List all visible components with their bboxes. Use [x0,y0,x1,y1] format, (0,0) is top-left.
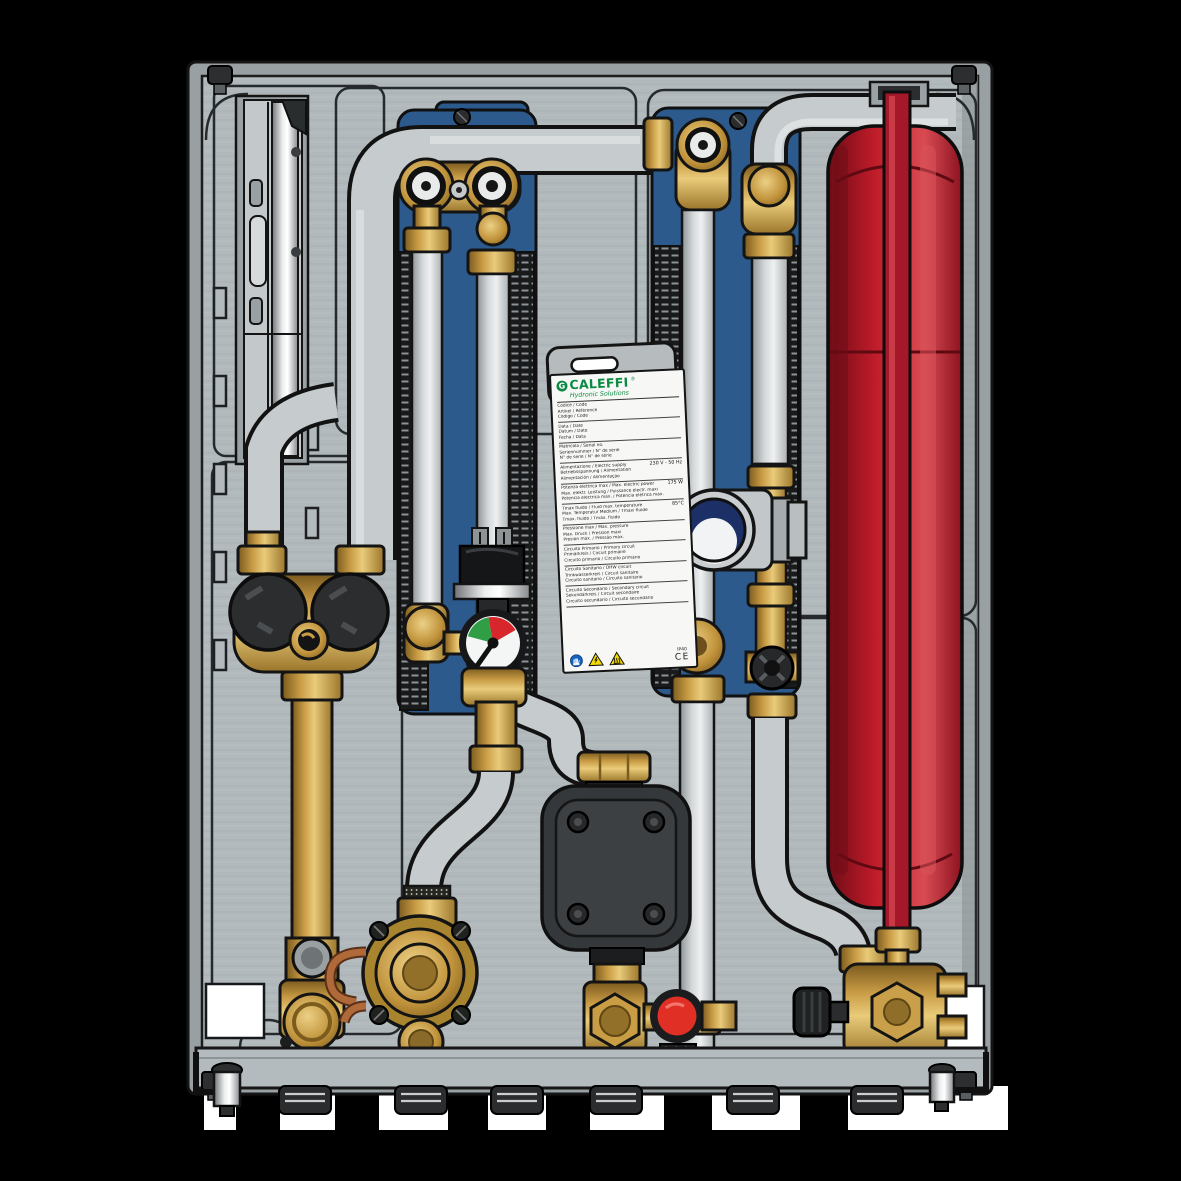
label-section-lines: Matricola / Serial no.Seriennummer / N° … [559,440,682,462]
label-section-lines: Codice / CodeArtikel / RéférenceCódigo /… [557,399,680,421]
caleffi-ring-icon: G [556,380,567,391]
label-section-lines: Pressione max / Max. pressureMax. Druck … [563,521,686,543]
hot-surface-icon [609,651,626,666]
label-spec-value: 230 V - 50 Hz [647,460,682,478]
fill-valve-red-knob [658,997,697,1036]
label-section-9: Circuito Secondario / Secondary circuitS… [566,581,689,607]
wear-gloves-icon [570,653,584,667]
label-section-lines: Alimentazione / Electric supplyBetriebss… [560,462,648,482]
thermostatic-control-head [674,490,806,570]
bottom-rail [196,1048,986,1116]
vessel-connection-pipe [884,92,910,932]
label-section-lines: Circuito Secondario / Secondary circuitS… [566,583,689,605]
label-spec-value: 175 W [665,481,683,498]
label-section-lines: Circuito Primario / Primary circuitPrimä… [564,542,687,564]
label-spec-value: 85°C [670,501,685,518]
expansion-vessel [828,82,962,932]
ip-ce-block: IP40 CE [675,648,691,662]
ce-mark: CE [675,653,690,663]
panel-cutout-left [206,984,264,1038]
label-section-lines: Data / DateDatum / DateFecha / Data [558,419,681,441]
electric-hazard-icon [588,652,605,667]
circulation-pump [542,752,690,984]
registered-mark: ® [630,376,635,382]
label-section-lines: Circuito Sanitario / DHW circuitTrinkwas… [565,562,688,584]
label-section-lines: Tmax fluido / Fluid max. temperatureMax.… [562,502,671,523]
rating-label: G CALEFFI ® Hydronic Solutions Codice / … [549,368,698,674]
label-section-lines: Potenza elettrica max / Max. electric po… [561,481,666,502]
rating-label-plate: G CALEFFI ® Hydronic Solutions Codice / … [549,368,698,674]
label-spec-sections: Codice / CodeArtikel / RéférenceCódigo /… [557,396,690,650]
